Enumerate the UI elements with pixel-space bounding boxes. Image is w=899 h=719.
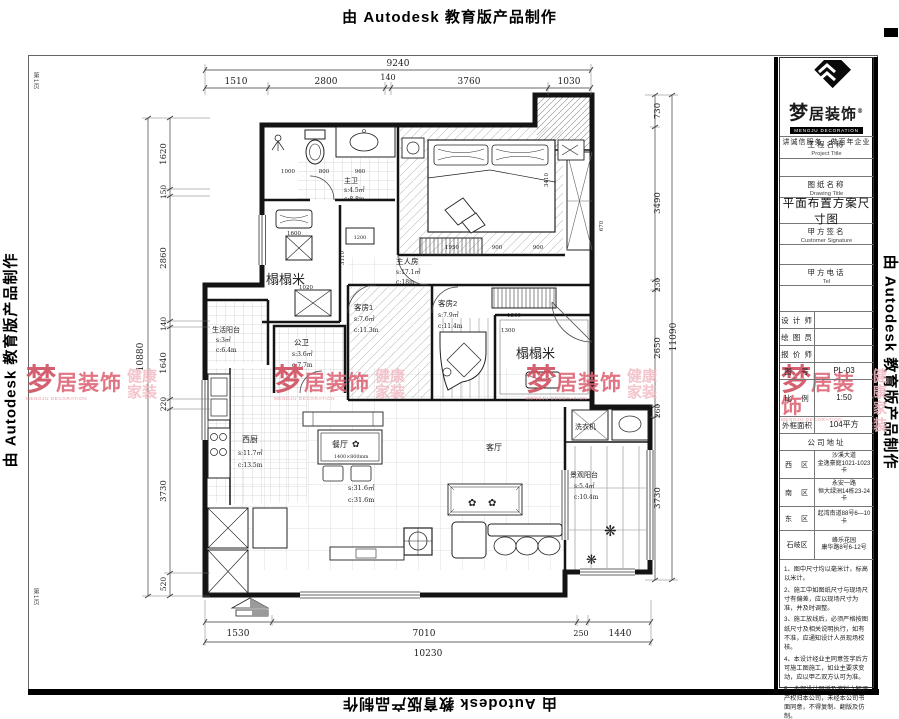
- drawing-title-value: 平面布置方案尺寸图: [780, 197, 873, 223]
- balcony-planks: [567, 446, 648, 570]
- svg-text:1300: 1300: [501, 328, 515, 334]
- svg-text:10230: 10230: [414, 649, 443, 659]
- svg-text:1530: 1530: [227, 629, 250, 639]
- svg-text:2860: 2860: [159, 247, 169, 269]
- svg-text:900: 900: [492, 245, 503, 251]
- svg-text:1020: 1020: [299, 285, 313, 291]
- quoter-row: 报 价 师: [780, 345, 873, 362]
- north-arrow-icon: [232, 598, 268, 616]
- svg-text:1440: 1440: [609, 629, 632, 639]
- logo-diamond-icon: [797, 60, 857, 96]
- svg-text:c:11.4m: c:11.4m: [438, 323, 463, 330]
- svg-text:c:31.6m: c:31.6m: [348, 496, 374, 504]
- signature-value: [780, 244, 873, 264]
- general-notes: 1、图中尺寸均以毫米计，标高以米计。 2、施工中如图纸尺寸与现场尺寸有偏差，应以…: [780, 559, 873, 687]
- svg-text:s:7.9㎡: s:7.9㎡: [438, 311, 459, 319]
- svg-text:11090: 11090: [669, 322, 679, 351]
- flower-icon: ✿: [468, 498, 476, 509]
- project-title-value: [780, 158, 873, 176]
- svg-text:公卫: 公卫: [294, 338, 309, 347]
- drawing-sheet: 由 Autodesk 教育版产品制作 由 Autodesk 教育版产品制作 由 …: [0, 0, 899, 719]
- svg-text:s:3.6㎡: s:3.6㎡: [292, 350, 313, 358]
- svg-text:c:18m: c:18m: [396, 279, 415, 286]
- address-header: 公司地址: [780, 433, 873, 450]
- svg-text:1360: 1360: [507, 313, 521, 319]
- svg-text:客房2: 客房2: [438, 298, 457, 308]
- svg-text:2650: 2650: [653, 337, 663, 359]
- svg-text:960: 960: [355, 169, 366, 175]
- svg-text:西厨: 西厨: [242, 435, 258, 444]
- svg-text:s:31.6㎡: s:31.6㎡: [348, 483, 375, 492]
- address-row-south: 南 区 永安一路恒大绿洲14栋23-24卡: [780, 478, 873, 506]
- svg-text:520: 520: [159, 577, 168, 592]
- svg-text:230: 230: [653, 278, 662, 293]
- svg-text:c:13.5m: c:13.5m: [238, 462, 263, 469]
- flower-icon: ✿: [488, 498, 496, 509]
- svg-text:c:11.3m: c:11.3m: [354, 327, 379, 334]
- area-row: 外框面积 104平方: [780, 416, 873, 433]
- svg-text:3730: 3730: [159, 480, 169, 502]
- drawing-no-row: 图 号 PL-03: [780, 362, 873, 379]
- title-block: 梦居装饰® MENGJU DECORATION 讲诚信服务 做百年企业 工程名称…: [779, 57, 874, 688]
- svg-text:景观阳台: 景观阳台: [570, 470, 598, 479]
- svg-text:c:10.4m: c:10.4m: [574, 494, 599, 501]
- svg-text:3410: 3410: [544, 173, 550, 187]
- svg-text:2800: 2800: [315, 77, 338, 87]
- svg-text:900: 900: [533, 245, 544, 251]
- svg-text:250: 250: [573, 629, 588, 638]
- svg-text:1510: 1510: [225, 77, 248, 87]
- drawing-title-header: 图纸名称 Drawing Title: [780, 176, 873, 197]
- svg-text:s:7.6㎡: s:7.6㎡: [354, 315, 375, 323]
- svg-text:s:17.1㎡: s:17.1㎡: [396, 268, 420, 276]
- svg-text:s:4.5㎡: s:4.5㎡: [344, 186, 365, 194]
- svg-text:1200: 1200: [354, 235, 367, 241]
- svg-text:生活阳台: 生活阳台: [212, 325, 240, 334]
- scale-row: 比 例 1:50: [780, 379, 873, 416]
- logo-brand-name: 梦居装饰®: [780, 98, 873, 125]
- svg-text:榻榻米: 榻榻米: [516, 346, 555, 361]
- svg-text:c:6.4m: c:6.4m: [216, 347, 237, 354]
- svg-text:3730: 3730: [653, 487, 663, 509]
- svg-text:客房1: 客房1: [354, 302, 373, 312]
- tel-header: 甲方电话 Tel: [780, 264, 873, 285]
- flower-icon: ✿: [352, 439, 360, 449]
- tel-value: [780, 285, 873, 311]
- floor-plan: ❋ ❋ ✿ ✿ ✿ 主卫 s:4.5㎡ c:8.8m 榻榻米 主人房 s:17.…: [0, 0, 899, 719]
- address-row-shiqi: 石岐区 峰乐花园康华路8号6-12号: [780, 530, 873, 559]
- svg-text:1030: 1030: [558, 77, 581, 87]
- svg-text:c:7.7m: c:7.7m: [292, 362, 313, 369]
- svg-text:餐厅: 餐厅: [332, 440, 348, 449]
- svg-text:c:8.8m: c:8.8m: [344, 196, 365, 203]
- company-logo: 梦居装饰® MENGJU DECORATION 讲诚信服务 做百年企业: [780, 58, 873, 136]
- svg-text:3490: 3490: [653, 192, 663, 214]
- svg-text:客厅: 客厅: [486, 442, 502, 452]
- svg-text:s:3㎡: s:3㎡: [216, 336, 231, 344]
- logo-caption: MENGJU DECORATION: [790, 127, 863, 134]
- draftsman-row: 绘 图 员: [780, 328, 873, 345]
- plant-icon: ❋: [604, 523, 617, 540]
- svg-text:730: 730: [653, 103, 663, 119]
- svg-text:1950: 1950: [445, 245, 459, 251]
- svg-text:s:5.4㎡: s:5.4㎡: [574, 482, 595, 490]
- address-row-east: 东 区 起湾南道88号6—10卡: [780, 506, 873, 530]
- svg-text:670: 670: [599, 220, 605, 231]
- plant-icon: ❋: [586, 552, 597, 567]
- designer-row: 设 计 师: [780, 311, 873, 328]
- svg-text:9240: 9240: [387, 59, 410, 69]
- svg-text:1620: 1620: [159, 143, 169, 165]
- svg-text:主人房: 主人房: [396, 256, 419, 266]
- svg-text:洗衣机: 洗衣机: [575, 422, 596, 431]
- svg-text:s:11.7㎡: s:11.7㎡: [238, 449, 262, 457]
- address-row-west: 西 区 沙溪大道金逸豪庭1021-1023卡: [780, 450, 873, 478]
- svg-text:10880: 10880: [136, 342, 146, 371]
- svg-text:800: 800: [319, 169, 330, 175]
- svg-text:主卫: 主卫: [344, 176, 358, 185]
- svg-text:260: 260: [653, 404, 662, 419]
- svg-text:140: 140: [380, 73, 395, 82]
- svg-text:150: 150: [159, 185, 168, 200]
- svg-text:1640: 1640: [159, 352, 169, 374]
- svg-text:1600: 1600: [287, 231, 301, 237]
- svg-text:1400×800mm: 1400×800mm: [334, 454, 369, 460]
- svg-text:3110: 3110: [340, 251, 346, 265]
- svg-text:7010: 7010: [413, 629, 436, 639]
- svg-text:3760: 3760: [458, 77, 481, 87]
- svg-text:220: 220: [159, 397, 168, 412]
- svg-text:140: 140: [159, 317, 168, 332]
- svg-text:1000: 1000: [281, 169, 295, 175]
